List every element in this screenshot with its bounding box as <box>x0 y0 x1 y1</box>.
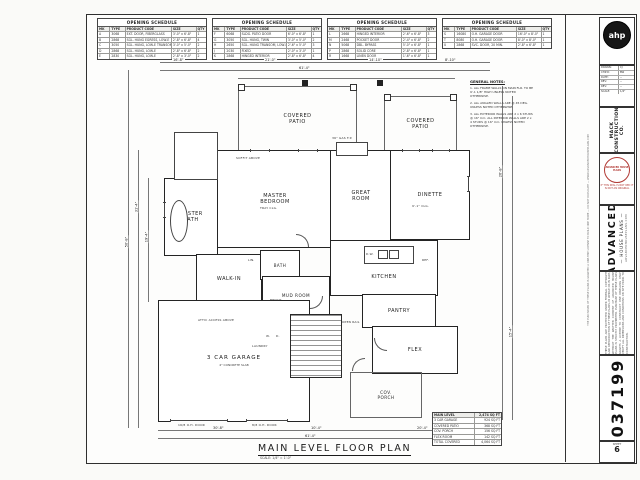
table-cell: 1668 <box>340 54 355 58</box>
sheet-number-box: SHEET 6 <box>599 441 635 463</box>
table-row: N5068DBL. BYPASS5'-0" x 6'-8"1 <box>328 42 436 47</box>
table-cell: EXT. DOOR, FIBERGLASS <box>126 32 172 36</box>
table-cell: P <box>328 49 340 53</box>
table-cell: 156 SQ FT <box>475 429 501 433</box>
stamp-text: ADVANCED HOUSE PLANS <box>605 167 629 173</box>
edge-note: THE PURCHASER OF THESE PLANS IS GRANTED … <box>587 134 590 325</box>
table-cell: SIZE <box>287 27 312 31</box>
patio-post <box>377 80 383 86</box>
table-cell: SVC. DOOR, 20 MIN. <box>471 43 517 47</box>
table-cell: SIZE <box>172 27 197 31</box>
table-cell: SGL. HUNG TRANSOM, LOW-E <box>241 43 287 47</box>
titleblock-divider <box>565 14 566 462</box>
table-cell: H <box>213 43 225 47</box>
annotation: 16/8 O.H. DOOR <box>178 423 205 427</box>
table-cell: CJ <box>619 66 634 70</box>
fireplace <box>336 142 368 156</box>
window <box>163 202 166 218</box>
logo-box: ahp <box>599 17 635 65</box>
table-cell: SGL. HUNG, LOW-E <box>126 49 172 53</box>
annotation: 36" GAS F.P. <box>332 136 352 140</box>
table-cell: 2830 <box>110 54 125 58</box>
table-cell: 3 CAR GARAGE <box>433 418 475 422</box>
garage-door-opening <box>170 419 228 422</box>
dimension-line <box>238 78 455 79</box>
ahp-logo-icon: ahp <box>603 21 631 49</box>
table-cell: A <box>98 32 110 36</box>
room-dinette: DINETTE <box>390 150 470 240</box>
table-cell: D <box>98 49 110 53</box>
edge-note-box: THE PURCHASER OF THESE PLANS IS GRANTED … <box>584 90 592 370</box>
table-row: COVERED PATIO368 SQ FT <box>433 423 501 428</box>
table-cell: SIZE <box>402 27 427 31</box>
table-row: REV:-- <box>600 84 634 89</box>
table-cell: PRODUCT CODE <box>356 27 402 31</box>
room-label: COVERED PATIO <box>407 118 435 131</box>
table-cell: 1 <box>197 32 207 36</box>
table-row: F6068SLDG. PATIO DOOR6'-0" x 6'-8"1 <box>213 31 321 36</box>
table-cell: SCALE: <box>600 90 619 94</box>
dimension-line <box>138 150 139 428</box>
dimension-label: 61'-4" <box>304 434 317 438</box>
table-cell: SGL. HUNG EGRESS, LOW-E <box>126 38 172 42</box>
table-row: M2468POCKET DOOR2'-4" x 6'-8"2 <box>328 37 436 42</box>
shower-room <box>174 132 218 180</box>
table-row: MAIN LEVEL2,474 SQ FT <box>433 413 501 417</box>
schedule-table: MKTYPEPRODUCT CODESIZEQTYA3068EXT. DOOR,… <box>98 27 206 59</box>
table-cell: SOLID CORE <box>356 49 402 53</box>
table-row: FLEX ROOM142 SQ FT <box>433 434 501 439</box>
table-cell: MK <box>443 27 455 31</box>
table-cell: 2,474 SQ FT <box>475 413 501 417</box>
table-cell: 2868 <box>340 49 355 53</box>
logo-text: ahp <box>609 31 626 40</box>
table-cell: 3'-0" x 5'-0" <box>172 43 197 47</box>
table-cell: 3068 <box>110 32 125 36</box>
annotation: REF. <box>422 258 429 262</box>
table-cell: U <box>443 43 455 47</box>
table-cell: QTY <box>427 27 437 31</box>
annotation: OPEN RAIL <box>342 320 360 324</box>
table-cell: DRAWN: <box>600 66 619 70</box>
room-covered-patio-right: COVERED PATIO <box>384 96 457 152</box>
table-row: MKTYPEPRODUCT CODESIZEQTY <box>328 27 436 31</box>
bathtub <box>170 200 188 242</box>
table-cell: TYPE <box>340 27 355 31</box>
table-cell: 16'-0" x 8'-0" <box>517 32 542 36</box>
table-cell: G <box>213 38 225 42</box>
patio-post <box>238 84 245 91</box>
table-cell: 2668 <box>340 32 355 36</box>
annotation: BENCH <box>270 298 282 302</box>
table-cell: SGL. HUNG, TWIN <box>241 38 287 42</box>
annotation: 8/8 O.H. DOOR <box>252 423 277 427</box>
table-cell: TYPE <box>455 27 470 31</box>
table-cell: MK <box>213 27 225 31</box>
table-cell: SGL. HUNG, LOW-E TRANSOM <box>126 43 172 47</box>
window <box>250 149 270 152</box>
table-row: CHK'D:BW <box>600 70 634 75</box>
room-label: BATH <box>274 263 287 268</box>
general-notes: GENERAL NOTES: 1. ALL FRAME WALLS ON MAI… <box>470 80 534 131</box>
revision-table: DRAWN:CJCHK'D:BWDATE:--REV:--REV:--SCALE… <box>599 65 635 107</box>
annotation: SOFFIT ABOVE <box>236 156 260 160</box>
room-label: PANTRY <box>388 308 410 314</box>
annotation: 9'-1" CLG. <box>412 204 429 208</box>
room-master-bedroom: MASTER BEDROOM <box>216 150 334 248</box>
table-row: 3 CAR GARAGE924 SQ FT <box>433 417 501 422</box>
table-cell: TYPE <box>110 27 125 31</box>
room-cov-porch: COV. PORCH <box>350 372 422 418</box>
table-row: H2650SGL. HUNG TRANSOM, LOW-E2'-6" x 5'-… <box>213 42 321 47</box>
patio-post <box>350 84 357 91</box>
room-label: WALK-IN <box>217 276 241 282</box>
annotation: LIN. <box>248 258 255 262</box>
table-cell: 2 <box>197 54 207 58</box>
table-row: MKTYPEPRODUCT CODESIZEQTY <box>213 27 321 31</box>
annotation: W. <box>266 334 270 338</box>
table-cell: CHK'D: <box>600 71 619 75</box>
table-cell: 2'-8" x 6'-8" <box>402 49 427 53</box>
dimension-label: 61'-4" <box>298 66 311 70</box>
table-cell: DATE: <box>600 76 619 80</box>
table-cell: T <box>443 38 455 42</box>
table-cell: 6068 <box>225 32 240 36</box>
table-cell: SIZE <box>517 27 542 31</box>
dimension-label: 30'-8" <box>212 426 225 430</box>
dimension-line <box>160 70 490 71</box>
table-cell: 1/4" <box>619 90 634 94</box>
table-cell: 16080 <box>455 32 470 36</box>
opening-schedule-4: OPENING SCHEDULE MKTYPEPRODUCT CODESIZEQ… <box>442 18 552 49</box>
table-row: REV:-- <box>600 79 634 84</box>
stamp-box: ADVANCED HOUSE PLANS IF THIS SEAL IS NOT… <box>599 153 635 205</box>
table-cell: 5'-0" x 6'-8" <box>402 43 427 47</box>
dimension-line <box>160 62 490 63</box>
brand-name: ADVANCED <box>607 205 618 271</box>
table-cell: 2'-8" x 6'-8" <box>517 43 542 47</box>
table-cell: 2650 <box>225 43 240 47</box>
table-cell: S <box>443 32 455 36</box>
table-cell: 3'-0" x 6'-8" <box>172 32 197 36</box>
table-cell: 2'-8" x 6'-8" <box>287 54 312 58</box>
opening-schedule-3: OPENING SCHEDULE MKTYPEPRODUCT CODESIZEQ… <box>327 18 437 60</box>
table-cell: -- <box>619 76 634 80</box>
table-cell: -- <box>619 85 634 89</box>
dimension-label: 26'-8" <box>498 166 502 179</box>
table-row: J2030FIXED2'-0" x 3'-0"1 <box>213 48 321 53</box>
table-cell: 924 SQ FT <box>475 418 501 422</box>
annotation: TRAY CLG. <box>260 206 277 210</box>
table-cell: 2 <box>427 38 437 42</box>
table-cell: 4 <box>197 38 207 42</box>
table-cell: 368 SQ FT <box>475 424 501 428</box>
table-cell: 2'-6" x 5'-0" <box>287 43 312 47</box>
table-cell: 2868 <box>225 54 240 58</box>
general-note: 1. ALL FRAME WALLS ON MAIN FLR. TO BE 9'… <box>470 86 534 98</box>
table-cell: 2'-6" x 6'-8" <box>402 32 427 36</box>
table-row: C3050SGL. HUNG, LOW-E TRANSOM3'-0" x 5'-… <box>98 42 206 47</box>
table-cell: BW <box>619 71 634 75</box>
window <box>467 176 470 192</box>
table-cell: 2'-4" x 6'-8" <box>402 38 427 42</box>
table-cell: HINGED INTERIOR <box>356 32 402 36</box>
table-cell: 2030 <box>225 49 240 53</box>
table-cell: E <box>98 54 110 58</box>
table-cell: SLDG. PATIO DOOR <box>241 32 287 36</box>
annotation: ATTIC ACCESS ABOVE <box>198 318 234 322</box>
schedule-title: OPENING SCHEDULE <box>213 19 321 27</box>
table-cell: O.H. GARAGE DOOR <box>471 38 517 42</box>
table-row: SCALE:1/4" <box>600 89 634 94</box>
table-row: T8080O.H. GARAGE DOOR8'-0" x 8'-0"1 <box>443 37 551 42</box>
room-label: DINETTE <box>418 192 443 198</box>
table-cell: QTY <box>197 27 207 31</box>
table-cell: TOTAL COVERED <box>433 440 475 444</box>
table-cell: 4,064 SQ FT <box>475 440 501 444</box>
table-cell: 2868 <box>455 43 470 47</box>
plan-number: 037199 <box>608 359 627 438</box>
table-cell: 2'-8" x 6'-8" <box>172 38 197 42</box>
room-label: MASTER BEDROOM <box>260 193 290 206</box>
plan-title: MAIN LEVEL FLOOR PLAN <box>258 443 411 456</box>
table-cell: QTY <box>312 27 322 31</box>
table-cell: F <box>213 32 225 36</box>
table-cell: COV. PORCH <box>433 429 475 433</box>
table-cell: 1 <box>427 43 437 47</box>
table-cell: 2868 <box>110 38 125 42</box>
dimension-label: 8'-10" <box>444 58 457 62</box>
table-cell: 8080 <box>455 38 470 42</box>
schedule-title: OPENING SCHEDULE <box>328 19 436 27</box>
patio-post <box>450 94 457 101</box>
table-cell: PRODUCT CODE <box>471 27 517 31</box>
table-row: P2868SOLID CORE2'-8" x 6'-8"1 <box>328 48 436 53</box>
table-cell: SGL. HUNG, LOW-E <box>126 54 172 58</box>
table-row: MKTYPEPRODUCT CODESIZEQTY <box>98 27 206 31</box>
room-label: MUD ROOM <box>282 293 310 298</box>
general-notes-title: GENERAL NOTES: <box>470 80 534 84</box>
table-cell: REV: <box>600 80 619 84</box>
table-cell: 3 <box>312 43 322 47</box>
table-cell: COVERED PATIO <box>433 424 475 428</box>
table-cell: 3050 <box>225 38 240 42</box>
table-cell: 3'-0" x 5'-0" <box>287 38 312 42</box>
table-cell: 5068 <box>340 43 355 47</box>
table-cell: 1 <box>427 49 437 53</box>
table-cell: PRODUCT CODE <box>126 27 172 31</box>
table-cell: 2'-0" x 3'-0" <box>287 49 312 53</box>
schedule-title: OPENING SCHEDULE <box>98 19 206 27</box>
dimension-label: 20'-4" <box>416 426 429 430</box>
table-cell: FLEX ROOM <box>433 435 475 439</box>
room-great-room: GREAT ROOM <box>330 150 392 242</box>
table-cell: C <box>98 43 110 47</box>
room-label: GREAT ROOM <box>351 190 370 203</box>
room-pantry: PANTRY <box>362 294 436 328</box>
patio-post <box>384 94 391 101</box>
client-name: MACK CONSTRUCTION CO. <box>610 107 625 153</box>
dimension-line <box>128 70 129 428</box>
table-row: D2868SGL. HUNG, LOW-E2'-8" x 6'-8"2 <box>98 48 206 53</box>
table-cell: MAIN LEVEL <box>433 413 475 417</box>
table-cell: K <box>213 54 225 58</box>
table-cell: 4 <box>312 54 322 58</box>
dimension-label: 19'-4" <box>144 231 148 244</box>
dimension-label: 31'-4" <box>134 201 138 214</box>
table-cell: POCKET DOOR <box>356 38 402 42</box>
table-cell: L <box>328 32 340 36</box>
table-cell: DBL. BYPASS <box>356 43 402 47</box>
schedule-table: MKTYPEPRODUCT CODESIZEQTYF6068SLDG. PATI… <box>213 27 321 59</box>
disclaimer-box: THESE PLANS ARE PROTECTED UNDER FEDERAL … <box>599 271 635 355</box>
dimension-line <box>502 86 503 420</box>
general-note: 3. ALL EXTERIOR WALLS ARE 2 x 6 STUDS @ … <box>470 112 534 128</box>
table-cell: REV: <box>600 85 619 89</box>
table-row: A3068EXT. DOOR, FIBERGLASS3'-0" x 6'-8"1 <box>98 31 206 36</box>
table-cell: -- <box>619 80 634 84</box>
table-cell: 1 <box>542 43 552 47</box>
table-cell: 2'-8" x 6'-8" <box>172 49 197 53</box>
sink-basin <box>389 250 399 259</box>
table-cell: TYPE <box>225 27 240 31</box>
table-cell: 1 <box>312 49 322 53</box>
table-cell: FIXED <box>241 49 287 53</box>
annotation: D. <box>276 334 280 338</box>
table-cell: 3050 <box>110 43 125 47</box>
schedule-table: MKTYPEPRODUCT CODESIZEQTYL2668HINGED INT… <box>328 27 436 59</box>
annotation: D.W. <box>366 252 374 256</box>
plan-number-box: 037199 <box>599 355 635 441</box>
table-cell: 1 <box>427 54 437 58</box>
table-cell: 2468 <box>340 38 355 42</box>
table-cell: R <box>328 54 340 58</box>
table-cell: 1 <box>312 32 322 36</box>
general-note: 2. ALL ANGLED WALLS ARE @ 45 DEG. UNLESS… <box>470 101 534 109</box>
table-cell: 1 <box>542 38 552 42</box>
window <box>298 149 318 152</box>
schedule-title: OPENING SCHEDULE <box>443 19 551 27</box>
brand-subtitle: — HOUSE PLANS — <box>619 213 624 264</box>
client-box: MACK CONSTRUCTION CO. <box>599 107 635 153</box>
opening-schedule-2: OPENING SCHEDULE MKTYPEPRODUCT CODESIZEQ… <box>212 18 322 60</box>
table-row: E2830SGL. HUNG, LOW-E2'-8" x 3'-0"2 <box>98 53 206 58</box>
table-cell: MK <box>98 27 110 31</box>
table-row: G3050SGL. HUNG, TWIN3'-0" x 5'-0"2 <box>213 37 321 42</box>
window <box>432 149 450 152</box>
dimension-label: 15'-4" <box>508 326 512 339</box>
table-cell: 1'-6" x 6'-8" <box>402 54 427 58</box>
dimension-label: 10'-4" <box>310 426 323 430</box>
brand-box: ADVANCED — HOUSE PLANS — ADVANCEDHOUSEPL… <box>599 205 635 271</box>
table-cell: M <box>328 38 340 42</box>
table-cell: 2868 <box>110 49 125 53</box>
table-row: L2668HINGED INTERIOR2'-6" x 6'-8"3 <box>328 31 436 36</box>
table-cell: 2 <box>197 43 207 47</box>
room-label: FLEX <box>408 347 422 353</box>
table-row: S16080O.H. GARAGE DOOR16'-0" x 8'-0"1 <box>443 31 551 36</box>
stamp-subtext: IF THIS SEAL IS NOT RED IT IS NOT AN ORI… <box>600 184 634 190</box>
table-row: B2868SGL. HUNG EGRESS, LOW-E2'-8" x 6'-8… <box>98 37 206 42</box>
table-cell: J <box>213 49 225 53</box>
dimension-label: 16'-8" <box>172 58 185 62</box>
room-label: COV. PORCH <box>377 390 394 401</box>
table-cell: O.H. GARAGE DOOR <box>471 32 517 36</box>
plan-scale: SCALE: 1/4" = 1'-0" <box>260 456 291 460</box>
dimension-label: 50'-8" <box>124 236 128 249</box>
table-row: COV. PORCH156 SQ FT <box>433 428 501 433</box>
window <box>402 149 420 152</box>
dimension-line <box>512 96 513 420</box>
table-cell: QTY <box>542 27 552 31</box>
sheet-number: 6 <box>600 446 634 454</box>
table-row: MKTYPEPRODUCT CODESIZEQTY <box>443 27 551 31</box>
dimension-label: 21'-0" <box>264 58 277 62</box>
stairs <box>290 314 342 378</box>
table-row: TOTAL COVERED4,064 SQ FT <box>433 439 501 444</box>
red-seal-icon: ADVANCED HOUSE PLANS <box>604 157 630 183</box>
drawing-sheet: OPENING SCHEDULE MKTYPEPRODUCT CODESIZEQ… <box>0 0 640 480</box>
sink-basin <box>378 250 388 259</box>
table-cell: 3 <box>427 32 437 36</box>
table-row: U2868SVC. DOOR, 20 MIN.2'-8" x 6'-8"1 <box>443 42 551 47</box>
table-cell: 6'-0" x 6'-8" <box>287 32 312 36</box>
square-footage-table: MAIN LEVEL2,474 SQ FT3 CAR GARAGE924 SQ … <box>432 412 502 446</box>
room-label: KITCHEN <box>371 274 396 280</box>
table-cell: 2 <box>197 49 207 53</box>
opening-schedule-1: OPENING SCHEDULE MKTYPEPRODUCT CODESIZEQ… <box>97 18 207 60</box>
dimension-label: 14'-10" <box>368 58 383 62</box>
table-row: DATE:-- <box>600 75 634 80</box>
brand-url: ADVANCEDHOUSEPLANS.COM <box>625 214 628 262</box>
garage-door-opening <box>246 419 288 422</box>
table-cell: 1 <box>542 32 552 36</box>
table-cell: MK <box>328 27 340 31</box>
table-cell: 142 SQ FT <box>475 435 501 439</box>
disclaimer-text: THESE PLANS ARE PROTECTED UNDER FEDERAL … <box>605 272 630 354</box>
patio-post <box>302 80 308 86</box>
table-cell: PRODUCT CODE <box>241 27 287 31</box>
table-cell: N <box>328 43 340 47</box>
table-cell: 2 <box>312 38 322 42</box>
room-sublabel: 4" CONCRETE SLAB <box>219 363 248 367</box>
table-cell: 8'-0" x 8'-0" <box>517 38 542 42</box>
room-label: 3 CAR GARAGE <box>207 355 261 362</box>
table-cell: B <box>98 38 110 42</box>
schedule-table: MKTYPEPRODUCT CODESIZEQTYS16080O.H. GARA… <box>443 27 551 48</box>
annotation: LAUNDRY <box>252 344 268 348</box>
table-row: DRAWN:CJ <box>600 66 634 70</box>
room-label: COVERED PATIO <box>284 113 312 126</box>
